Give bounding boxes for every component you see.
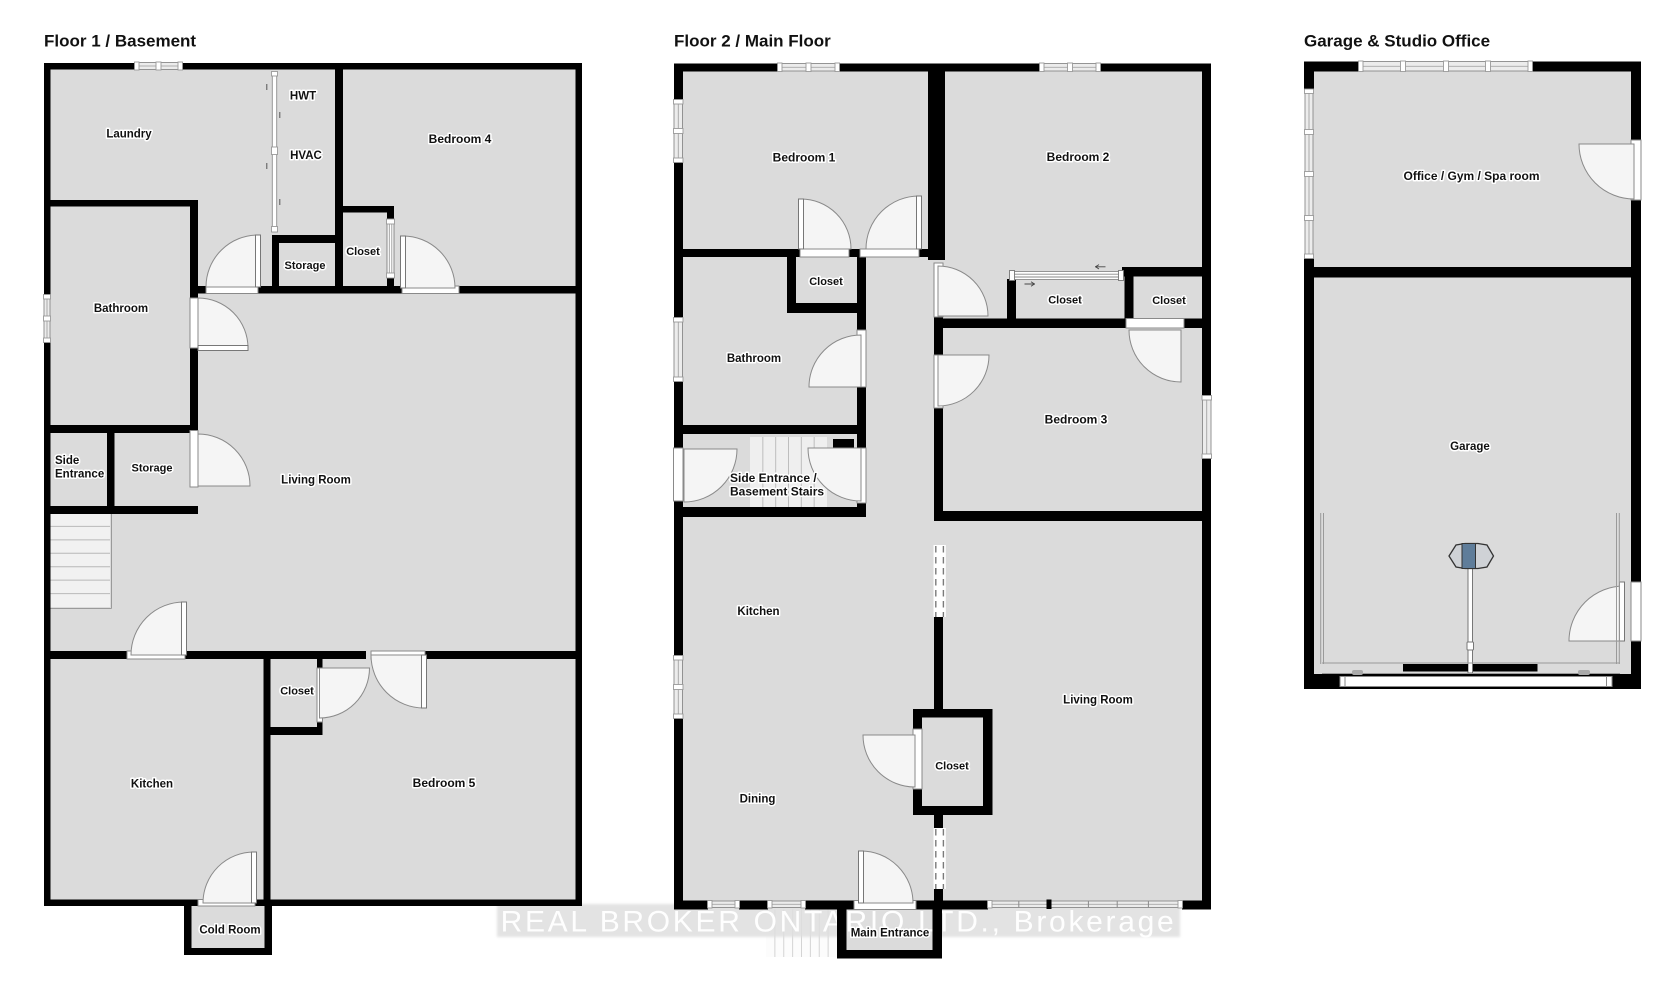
svg-text:HVAC: HVAC <box>290 150 322 162</box>
svg-text:Bathroom: Bathroom <box>727 353 781 365</box>
svg-text:Storage: Storage <box>132 463 173 475</box>
svg-text:Kitchen: Kitchen <box>131 779 173 791</box>
svg-text:Storage: Storage <box>285 260 326 272</box>
svg-text:HWT: HWT <box>290 91 316 103</box>
svg-text:Entrance: Entrance <box>55 469 104 481</box>
svg-text:Floor 1 / Basement: Floor 1 / Basement <box>44 32 196 51</box>
svg-text:Bathroom: Bathroom <box>94 303 148 315</box>
svg-text:Bedroom 5: Bedroom 5 <box>413 776 476 790</box>
svg-text:Bedroom 3: Bedroom 3 <box>1045 413 1108 427</box>
svg-text:Closet: Closet <box>809 276 843 288</box>
svg-text:Closet: Closet <box>280 686 314 698</box>
svg-text:Living Room: Living Room <box>281 475 351 487</box>
svg-text:Kitchen: Kitchen <box>737 606 779 618</box>
svg-text:Office / Gym / Spa room: Office / Gym / Spa room <box>1403 169 1539 183</box>
svg-text:Closet: Closet <box>1152 295 1186 307</box>
svg-text:Closet: Closet <box>346 246 380 258</box>
svg-text:Floor 2 / Main Floor: Floor 2 / Main Floor <box>674 32 831 51</box>
svg-text:Bedroom 4: Bedroom 4 <box>429 132 492 146</box>
svg-text:Basement Stairs: Basement Stairs <box>730 485 824 499</box>
svg-text:Laundry: Laundry <box>106 129 152 141</box>
svg-text:Main Entrance: Main Entrance <box>851 928 930 940</box>
svg-text:Closet: Closet <box>1048 295 1082 307</box>
svg-text:Side Entrance /: Side Entrance / <box>730 471 817 485</box>
svg-text:Living Room: Living Room <box>1063 695 1133 707</box>
svg-text:Bedroom 1: Bedroom 1 <box>773 151 836 165</box>
svg-text:Cold Room: Cold Room <box>199 925 260 937</box>
svg-text:Garage & Studio Office: Garage & Studio Office <box>1304 32 1490 51</box>
svg-text:Side: Side <box>55 455 79 467</box>
svg-text:Bedroom 2: Bedroom 2 <box>1047 150 1110 164</box>
svg-text:Garage: Garage <box>1450 441 1490 453</box>
svg-text:Dining: Dining <box>740 794 776 806</box>
svg-text:Closet: Closet <box>935 761 969 773</box>
